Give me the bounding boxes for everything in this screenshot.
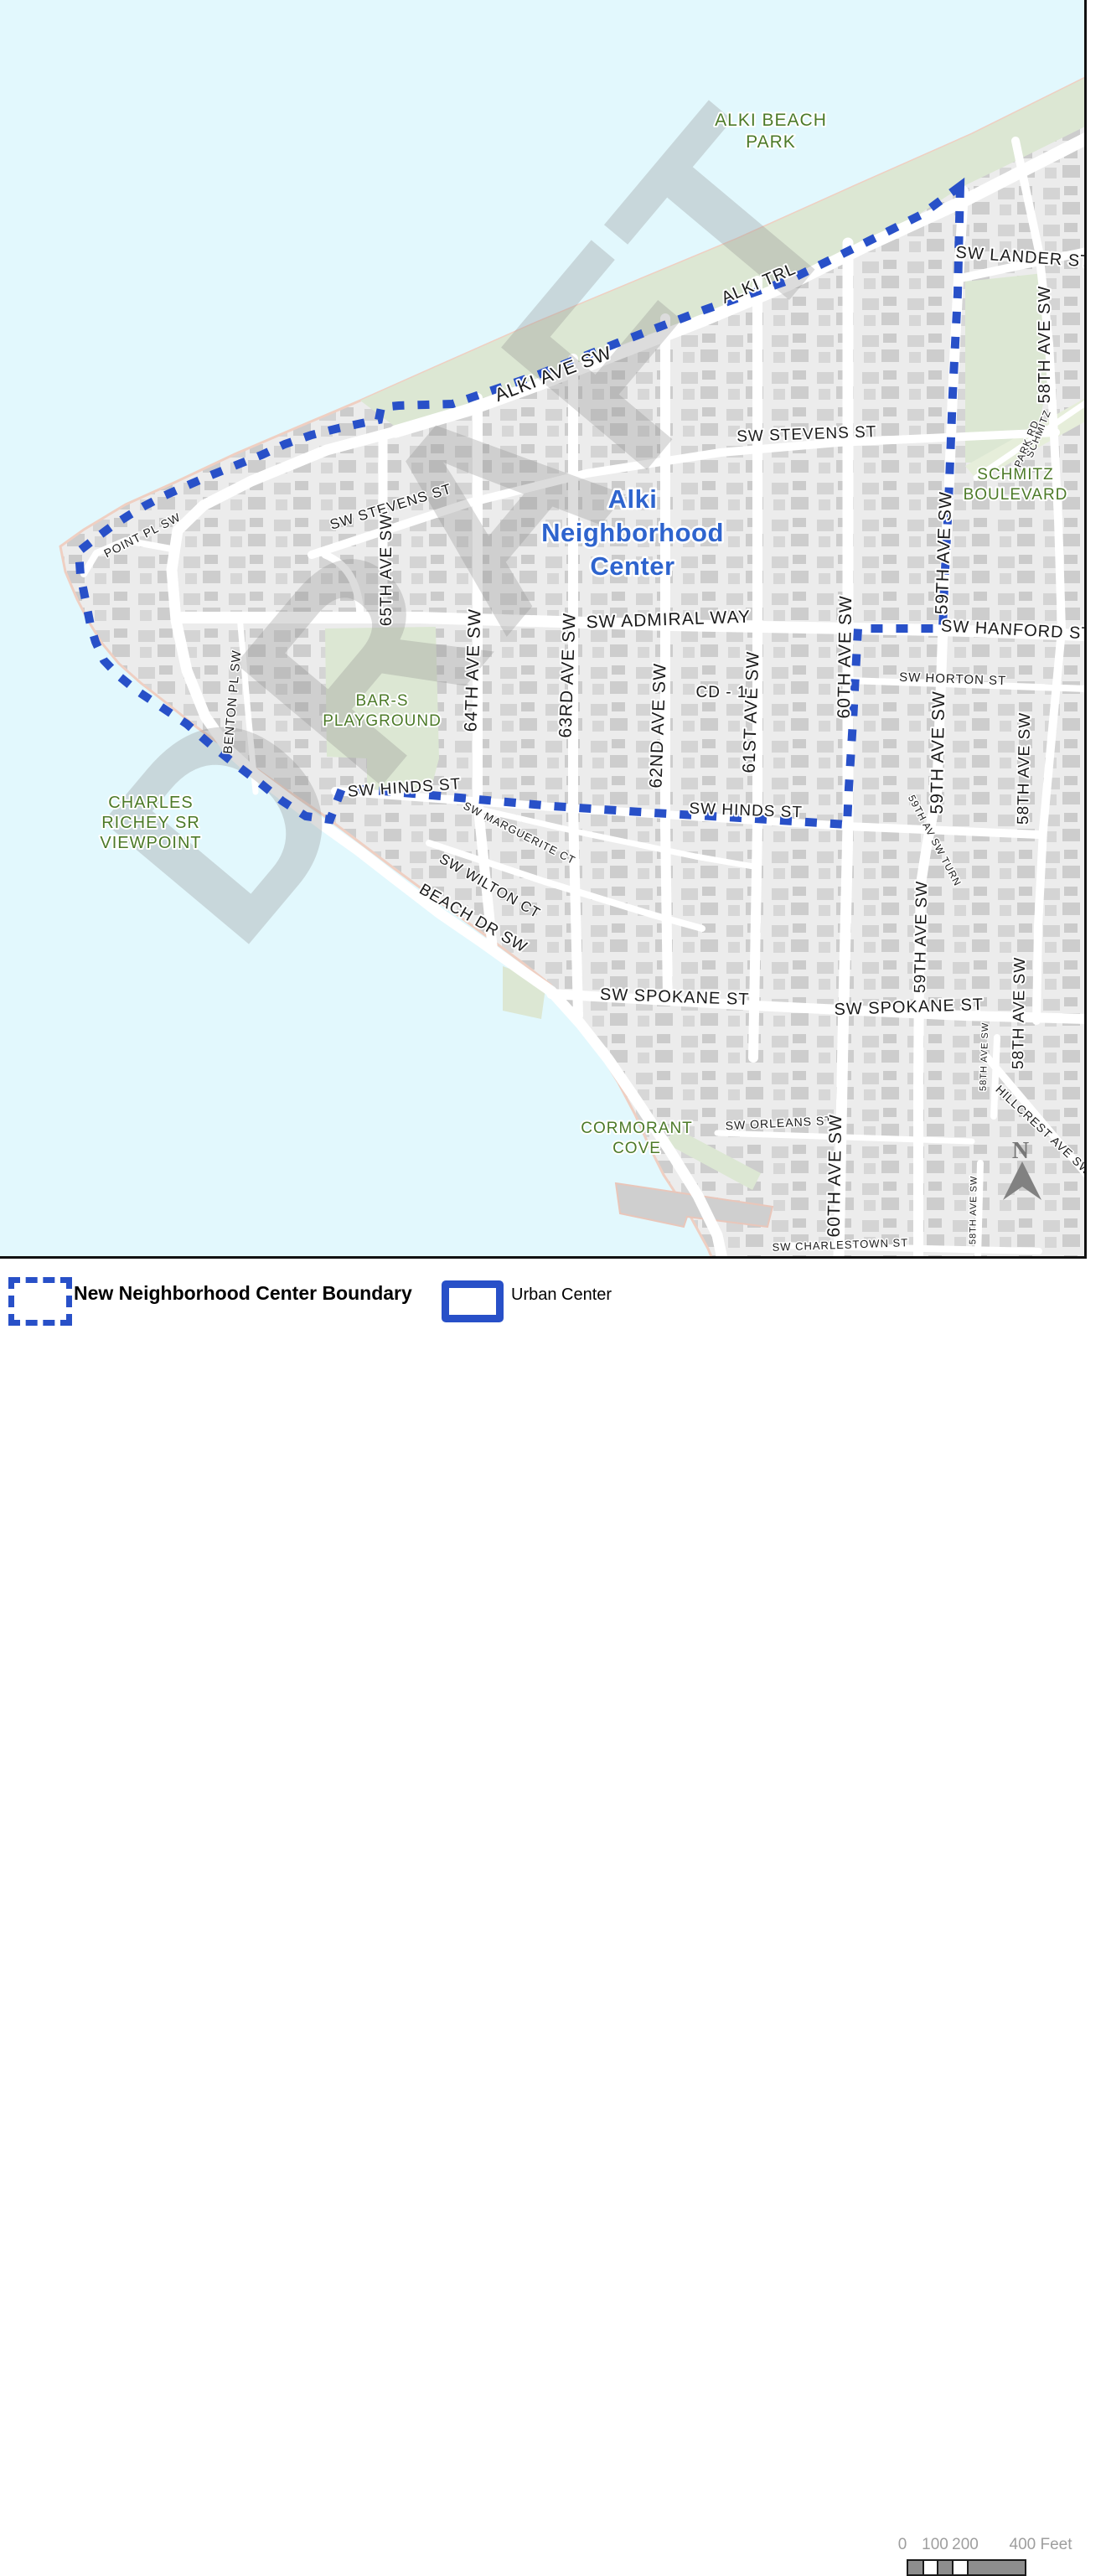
park-label: COVE [612, 1140, 661, 1157]
scale-bar [907, 2559, 1026, 2576]
north-label: N [1012, 1138, 1029, 1164]
svg-text:Center: Center [590, 551, 674, 581]
street-label: 60TH AVE SW [835, 595, 856, 719]
legend-item-label: Urban Center [511, 1285, 612, 1305]
park-label: RICHEY SR [101, 814, 200, 832]
park-label: PLAYGROUND [323, 712, 442, 730]
street-label: 59TH AVE SW [912, 881, 931, 994]
park-label: SCHMITZ [977, 466, 1053, 484]
street-label: 60TH AVE SW [824, 1114, 846, 1238]
street-label: 59TH AVE SW [928, 691, 949, 815]
map-legend: New Neighborhood Center Boundary Urban C… [0, 1259, 1106, 1332]
urban-center-swatch [442, 1280, 504, 1322]
park-label: PARK [746, 132, 796, 152]
park-label: CHARLES [108, 794, 193, 812]
map-frame-right [1084, 0, 1087, 1259]
legend-item-label: New Neighborhood Center Boundary [74, 1282, 412, 1305]
svg-text:Neighborhood: Neighborhood [541, 518, 724, 547]
street-label: 58TH AVE SW [1015, 712, 1034, 825]
street-label: 58TH AVE SW [1010, 957, 1029, 1070]
alki-neighborhood-center-map-page: { "colors": { "water": "#E2F8FD", "land"… [0, 0, 1106, 1332]
street-label: 65TH AVE SW [378, 514, 395, 626]
park-label: CORMORANT [581, 1120, 693, 1137]
zone-label: CD - 1 [696, 684, 747, 701]
park-label: ALKI BEACH [715, 111, 827, 130]
scale-tick: 0 [898, 2536, 907, 2554]
map-margin-right [1087, 0, 1106, 1259]
scale-tick: 100 [922, 2536, 948, 2554]
park-label: BOULEVARD [964, 486, 1068, 504]
scale-tick: 200 [952, 2536, 979, 2554]
street-label: 58TH AVE SW [1036, 286, 1054, 404]
street-label: 58TH AVE SW [968, 1176, 979, 1245]
scale-tick: 400 Feet [1010, 2536, 1072, 2554]
park-label: BAR-S [355, 692, 408, 710]
new-neighborhood-center-boundary-swatch [8, 1277, 72, 1326]
map-canvas: DRAFT ALKI TRL ALKI AVE SW SW LANDER ST … [0, 0, 1106, 1259]
park-label: VIEWPOINT [100, 834, 201, 852]
svg-text:Alki: Alki [608, 484, 658, 514]
